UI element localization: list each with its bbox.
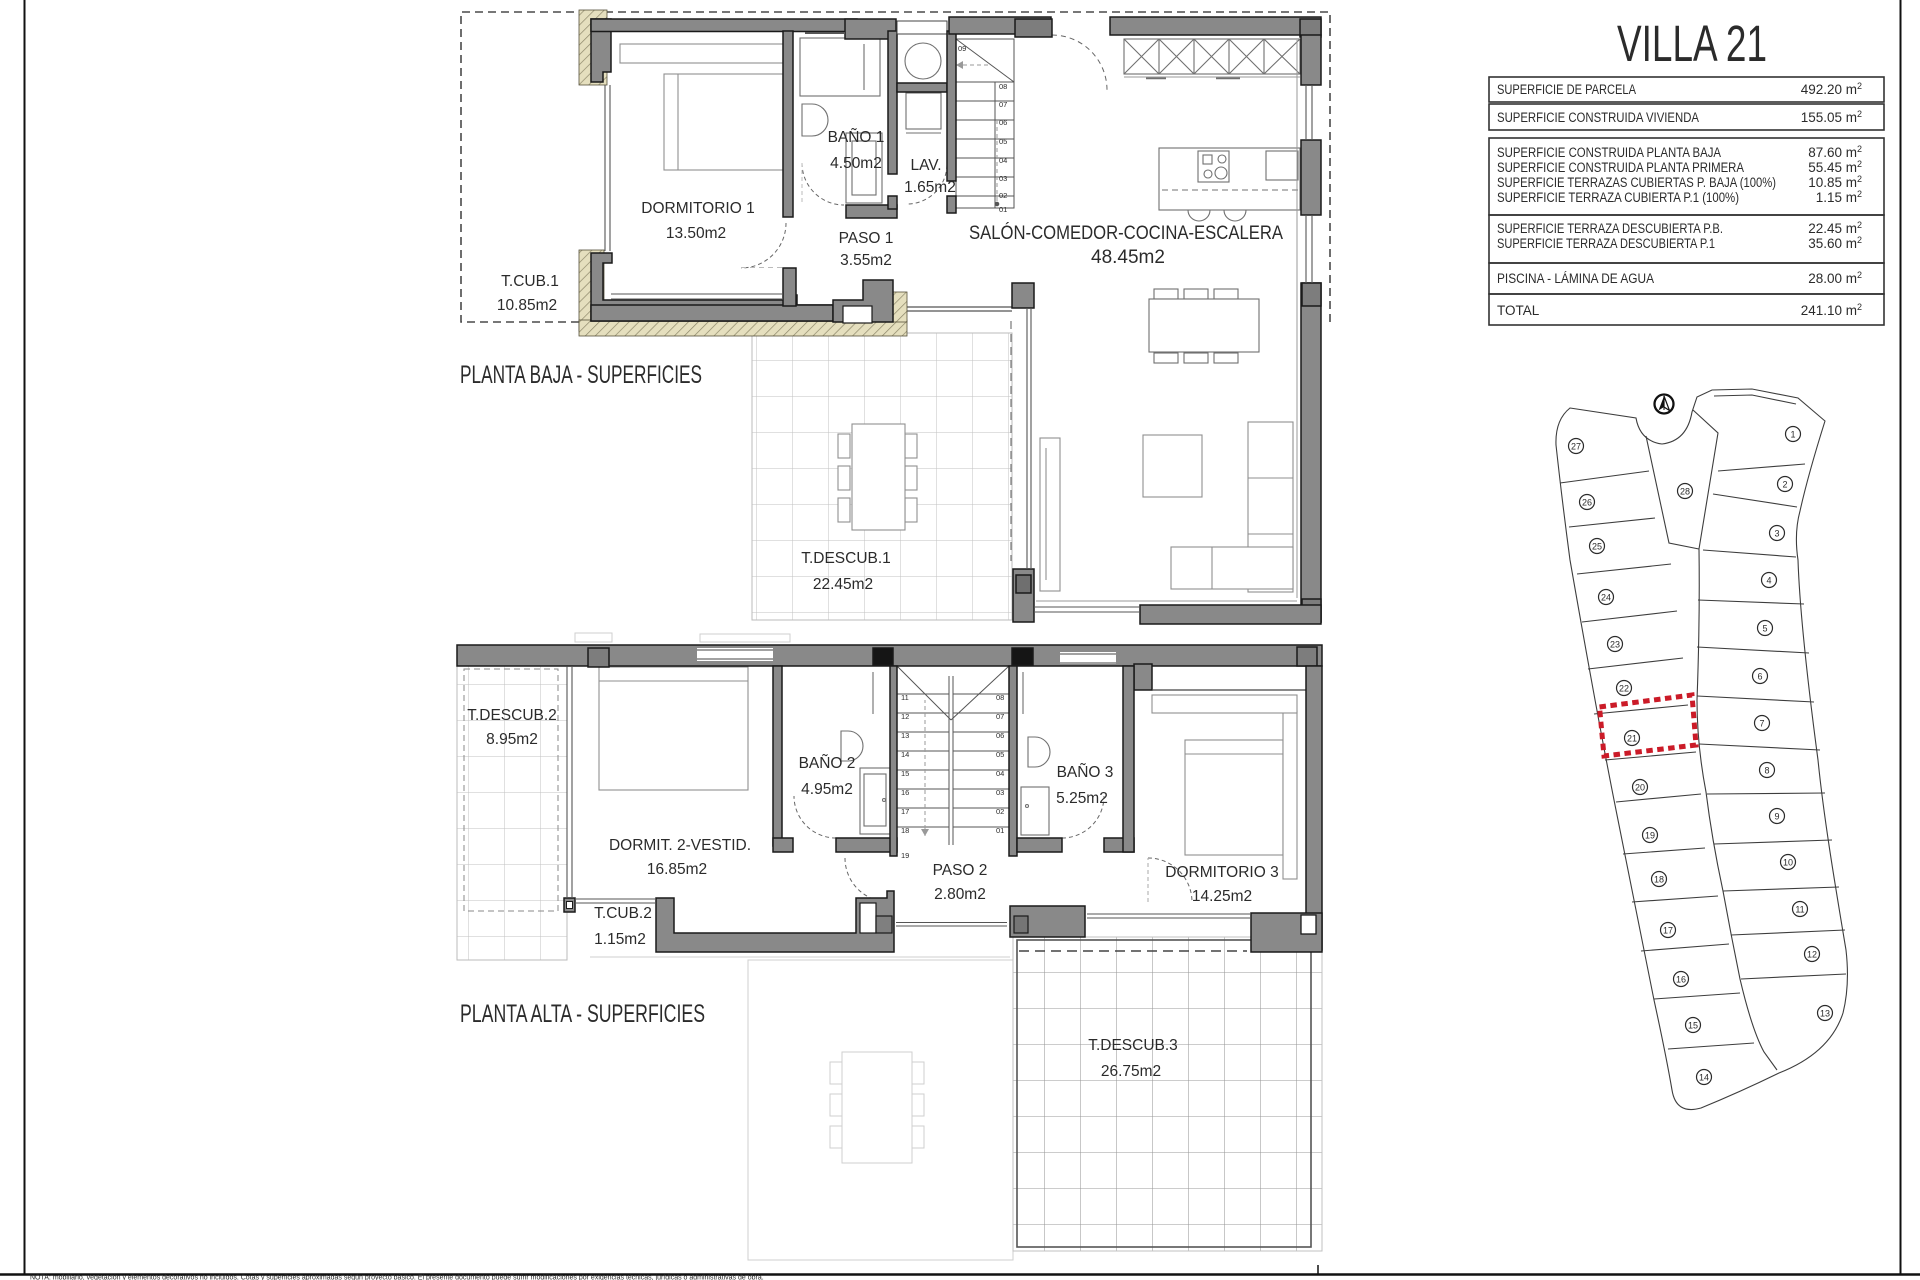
svg-text:TOTAL: TOTAL <box>1497 303 1540 318</box>
svg-text:13: 13 <box>1820 1009 1830 1019</box>
svg-text:VILLA 21: VILLA 21 <box>1617 15 1767 72</box>
svg-text:26.75m2: 26.75m2 <box>1101 1063 1161 1080</box>
svg-text:04: 04 <box>996 769 1004 778</box>
svg-text:04: 04 <box>999 156 1007 165</box>
svg-text:22: 22 <box>1619 684 1629 694</box>
svg-text:SUPERFICIE TERRAZA CUBIERTA P.: SUPERFICIE TERRAZA CUBIERTA P.1 (100%) <box>1497 190 1739 205</box>
svg-text:15: 15 <box>1688 1021 1698 1031</box>
svg-text:SUPERFICIE TERRAZAS CUBIERTAS: SUPERFICIE TERRAZAS CUBIERTAS P. BAJA (1… <box>1497 175 1776 190</box>
svg-text:25: 25 <box>1592 542 1602 552</box>
svg-text:17: 17 <box>901 807 909 816</box>
svg-text:DORMIT. 2-VESTID.: DORMIT. 2-VESTID. <box>609 837 751 854</box>
svg-text:12: 12 <box>1807 950 1817 960</box>
svg-text:11: 11 <box>901 693 909 702</box>
svg-text:4: 4 <box>1766 576 1771 586</box>
svg-text:03: 03 <box>996 788 1004 797</box>
svg-text:18: 18 <box>901 826 909 835</box>
svg-text:6: 6 <box>1757 672 1762 682</box>
svg-text:21: 21 <box>1627 734 1637 744</box>
svg-text:SUPERFICIE CONSTRUIDA VIVIENDA: SUPERFICIE CONSTRUIDA VIVIENDA <box>1497 110 1699 125</box>
svg-text:1: 1 <box>1790 430 1795 440</box>
svg-text:07: 07 <box>999 100 1007 109</box>
svg-text:155.05 m2: 155.05 m2 <box>1801 109 1862 125</box>
svg-text:BAÑO 1: BAÑO 1 <box>828 129 885 146</box>
svg-text:8.95m2: 8.95m2 <box>486 731 538 748</box>
svg-text:2: 2 <box>1782 480 1787 490</box>
svg-text:28: 28 <box>1680 487 1690 497</box>
svg-text:3: 3 <box>1774 529 1779 539</box>
svg-text:5.25m2: 5.25m2 <box>1056 790 1108 807</box>
svg-text:15: 15 <box>901 769 909 778</box>
svg-text:DORMITORIO 1: DORMITORIO 1 <box>641 200 754 217</box>
svg-text:01: 01 <box>996 826 1004 835</box>
svg-text:35.60 m2: 35.60 m2 <box>1808 235 1862 251</box>
svg-text:06: 06 <box>999 118 1007 127</box>
svg-text:BAÑO 2: BAÑO 2 <box>799 755 856 772</box>
svg-text:08: 08 <box>996 693 1004 702</box>
svg-text:28.00 m2: 28.00 m2 <box>1808 270 1862 286</box>
svg-text:SUPERFICIE CONSTRUIDA PLANTA B: SUPERFICIE CONSTRUIDA PLANTA BAJA <box>1497 145 1721 160</box>
svg-text:02: 02 <box>996 807 1004 816</box>
svg-text:01: 01 <box>999 205 1007 214</box>
svg-text:T.DESCUB.3: T.DESCUB.3 <box>1088 1037 1178 1054</box>
svg-text:10: 10 <box>1783 858 1793 868</box>
svg-text:18: 18 <box>1654 875 1664 885</box>
svg-text:LAV.: LAV. <box>910 157 941 174</box>
svg-text:17: 17 <box>1663 926 1673 936</box>
svg-text:23: 23 <box>1610 640 1620 650</box>
svg-text:48.45m2: 48.45m2 <box>1091 247 1165 268</box>
svg-text:492.20 m2: 492.20 m2 <box>1801 81 1862 97</box>
svg-text:13.50m2: 13.50m2 <box>666 225 726 242</box>
svg-text:02: 02 <box>999 191 1007 200</box>
svg-text:05: 05 <box>996 750 1004 759</box>
svg-text:10.85m2: 10.85m2 <box>497 297 557 314</box>
svg-text:26: 26 <box>1582 498 1592 508</box>
svg-text:SUPERFICIE CONSTRUIDA PLANTA P: SUPERFICIE CONSTRUIDA PLANTA PRIMERA <box>1497 160 1744 175</box>
svg-text:16: 16 <box>1676 975 1686 985</box>
svg-text:06: 06 <box>996 731 1004 740</box>
svg-text:T.DESCUB.1: T.DESCUB.1 <box>801 550 891 567</box>
svg-text:241.10 m2: 241.10 m2 <box>1801 302 1862 318</box>
svg-text:14: 14 <box>901 750 909 759</box>
svg-text:1.15 m2: 1.15 m2 <box>1816 189 1862 205</box>
svg-text:19: 19 <box>901 851 909 860</box>
svg-text:SUPERFICIE TERRAZA DESCUBIERTA: SUPERFICIE TERRAZA DESCUBIERTA P.B. <box>1497 221 1723 236</box>
svg-text:16.85m2: 16.85m2 <box>647 861 707 878</box>
svg-text:3.55m2: 3.55m2 <box>840 252 892 269</box>
svg-text:2.80m2: 2.80m2 <box>934 886 986 903</box>
svg-text:PISCINA - LÁMINA DE AGUA: PISCINA - LÁMINA DE AGUA <box>1497 271 1654 286</box>
svg-text:55.45 m2: 55.45 m2 <box>1808 159 1862 175</box>
svg-text:PLANTA ALTA - SUPERFICIES: PLANTA ALTA - SUPERFICIES <box>460 1000 705 1028</box>
svg-text:5: 5 <box>1762 624 1767 634</box>
svg-text:SUPERFICIE TERRAZA DESCUBIERTA: SUPERFICIE TERRAZA DESCUBIERTA P.1 <box>1497 236 1715 251</box>
svg-text:DORMITORIO 3: DORMITORIO 3 <box>1165 864 1278 881</box>
svg-text:1.65m2: 1.65m2 <box>904 179 956 196</box>
svg-text:PASO 2: PASO 2 <box>933 862 988 879</box>
svg-text:7: 7 <box>1759 719 1764 729</box>
svg-text:14.25m2: 14.25m2 <box>1192 888 1252 905</box>
svg-text:14: 14 <box>1699 1073 1709 1083</box>
svg-text:4.95m2: 4.95m2 <box>801 781 853 798</box>
svg-text:SUPERFICIE DE PARCELA: SUPERFICIE DE PARCELA <box>1497 82 1636 97</box>
svg-text:16: 16 <box>901 788 909 797</box>
svg-text:87.60 m2: 87.60 m2 <box>1808 144 1862 160</box>
svg-text:11: 11 <box>1795 905 1804 915</box>
svg-text:22.45 m2: 22.45 m2 <box>1808 220 1862 236</box>
svg-text:24: 24 <box>1601 593 1611 603</box>
svg-text:NOTA: mobiliario, vegetación y: NOTA: mobiliario, vegetación y elementos… <box>30 1275 764 1280</box>
svg-text:9: 9 <box>1774 812 1779 822</box>
svg-text:4.50m2: 4.50m2 <box>830 155 882 172</box>
svg-text:12: 12 <box>901 712 909 721</box>
svg-text:03: 03 <box>999 174 1007 183</box>
svg-text:13: 13 <box>901 731 909 740</box>
svg-text:08: 08 <box>999 82 1007 91</box>
svg-text:BAÑO 3: BAÑO 3 <box>1057 764 1114 781</box>
svg-text:22.45m2: 22.45m2 <box>813 576 873 593</box>
svg-text:20: 20 <box>1635 783 1645 793</box>
svg-text:10.85 m2: 10.85 m2 <box>1808 174 1862 190</box>
svg-text:PASO 1: PASO 1 <box>839 230 894 247</box>
svg-text:SALÓN-COMEDOR-COCINA-ESCALERA: SALÓN-COMEDOR-COCINA-ESCALERA <box>969 222 1283 244</box>
svg-text:8: 8 <box>1764 766 1769 776</box>
svg-text:27: 27 <box>1571 442 1581 452</box>
svg-text:1.15m2: 1.15m2 <box>594 931 646 948</box>
svg-text:05: 05 <box>999 137 1007 146</box>
svg-text:07: 07 <box>996 712 1004 721</box>
svg-text:19: 19 <box>1645 831 1655 841</box>
svg-text:PLANTA BAJA - SUPERFICIES: PLANTA BAJA - SUPERFICIES <box>460 361 702 389</box>
svg-text:T.CUB.2: T.CUB.2 <box>594 905 652 922</box>
svg-text:T.DESCUB.2: T.DESCUB.2 <box>467 707 557 724</box>
svg-text:T.CUB.1: T.CUB.1 <box>501 273 559 290</box>
svg-text:09: 09 <box>958 44 966 53</box>
